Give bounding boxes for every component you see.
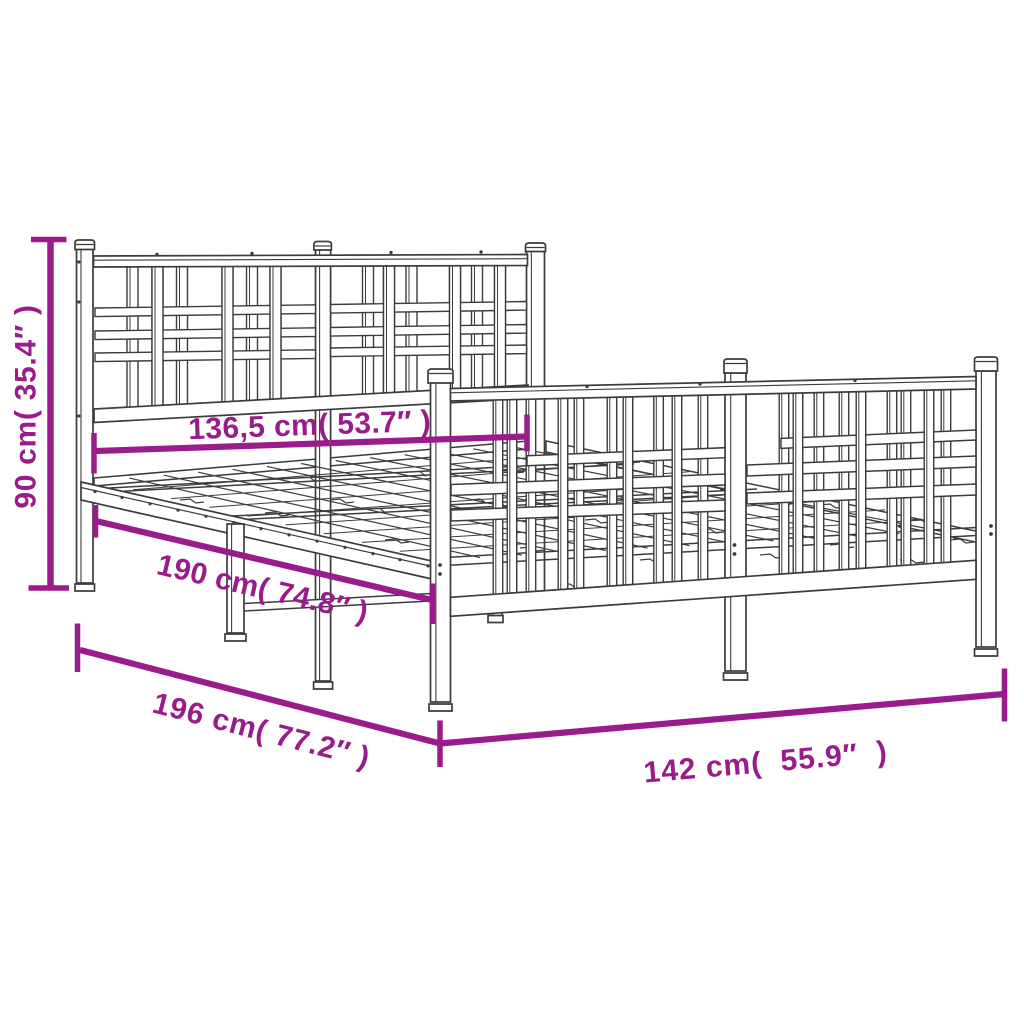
svg-text:90 cm( 35.4″ ): 90 cm( 35.4″ ) (10, 304, 43, 508)
